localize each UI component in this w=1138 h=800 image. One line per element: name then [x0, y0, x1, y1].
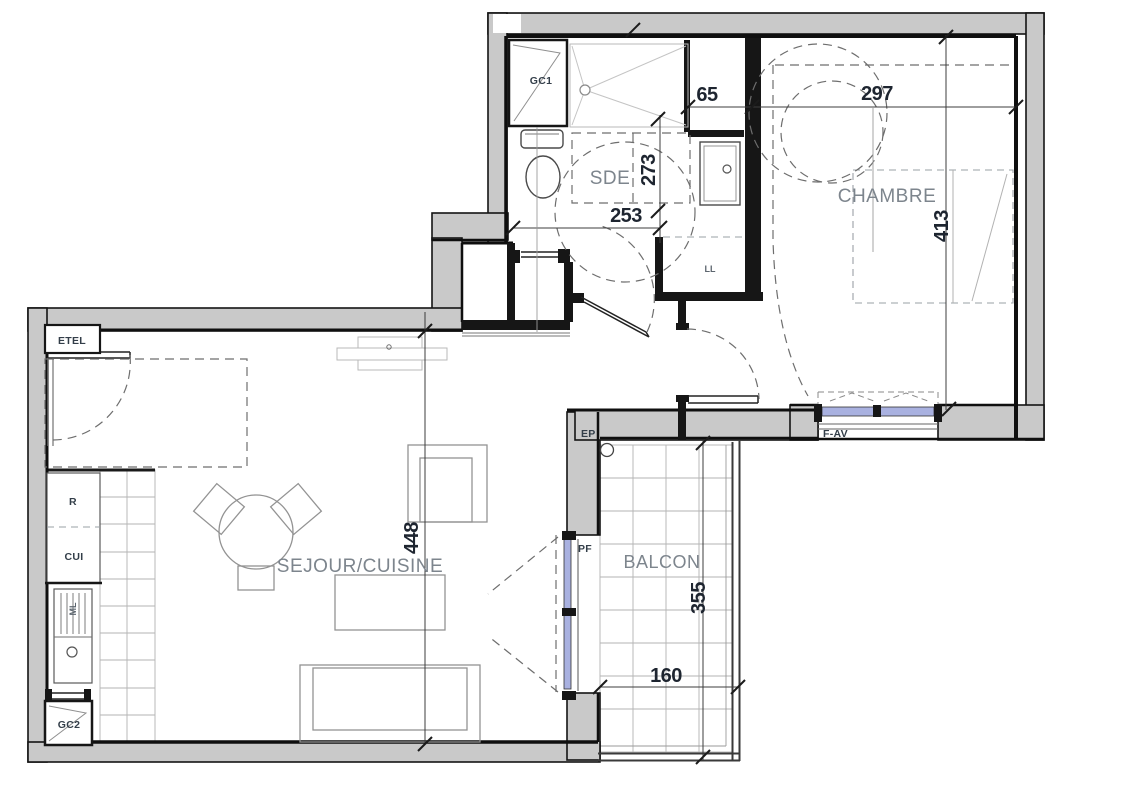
balcony-railing — [598, 440, 740, 761]
sink-drain-icon — [723, 165, 731, 173]
entry-door-leaf — [581, 297, 649, 337]
dim-sejour-depth: 448 — [401, 522, 423, 554]
dashed-clearances — [45, 44, 1012, 692]
room-label-sejour-cuisine: SEJOUR/CUISINE — [277, 556, 443, 577]
window-frames — [562, 404, 942, 700]
armchair — [408, 445, 487, 522]
pf-door-leaf-dash — [488, 537, 558, 594]
label-fridge: R — [69, 496, 77, 508]
floor-plan-page: SDE CHAMBRE SEJOUR/CUISINE BALCON 65 297… — [0, 0, 1138, 800]
label-gc1: GC1 — [530, 75, 553, 87]
floor-plan-svg: SDE CHAMBRE SEJOUR/CUISINE BALCON 65 297… — [0, 0, 1138, 800]
interior-walls — [47, 36, 1044, 742]
dim-chambre-width: 297 — [861, 83, 893, 105]
dining-chair — [271, 484, 322, 535]
top-wall-duct-gap — [493, 14, 521, 33]
label-etel: ETEL — [58, 335, 86, 347]
coffee-table — [335, 575, 445, 630]
dim-sde-width: 253 — [610, 205, 642, 227]
toilet — [521, 130, 563, 198]
fav-window-opening-dashes — [818, 392, 938, 404]
radiator — [337, 337, 447, 370]
label-f-av: F-AV — [823, 428, 848, 440]
etel-door-leaf — [47, 352, 130, 446]
dim-balcon-depth: 355 — [688, 582, 710, 614]
ep-drain — [601, 444, 614, 457]
room-label-chambre: CHAMBRE — [838, 186, 937, 207]
window-glass — [564, 407, 934, 689]
label-ll: LL — [705, 264, 716, 274]
label-gc2: GC2 — [58, 719, 81, 731]
label-cuisine: CUI — [65, 551, 84, 563]
bedroom-door-leaf — [688, 396, 758, 403]
room-label-balcon: BALCON — [623, 552, 700, 572]
sofa — [300, 665, 480, 742]
room-label-sde: SDE — [590, 168, 631, 189]
dim-sde-depth: 273 — [638, 154, 660, 186]
gc2-threshold — [50, 693, 88, 699]
dim-chambre-depth: 413 — [931, 210, 953, 242]
dim-balcon-width: 160 — [650, 665, 682, 687]
balcony-tiles — [600, 445, 732, 752]
fridge-cui-box — [47, 473, 100, 583]
dim-alcove-width: 65 — [696, 84, 718, 106]
label-pf: PF — [578, 543, 592, 555]
shower — [570, 44, 688, 127]
label-ep: EP — [581, 428, 596, 440]
sink-vanity — [700, 142, 740, 205]
label-ml: ML — [68, 602, 78, 615]
sde-inner-door — [511, 249, 570, 263]
shower-drain-icon — [580, 85, 590, 95]
pf-door-leaf-dash — [488, 636, 558, 692]
kitchen-sink-icon — [67, 647, 77, 657]
